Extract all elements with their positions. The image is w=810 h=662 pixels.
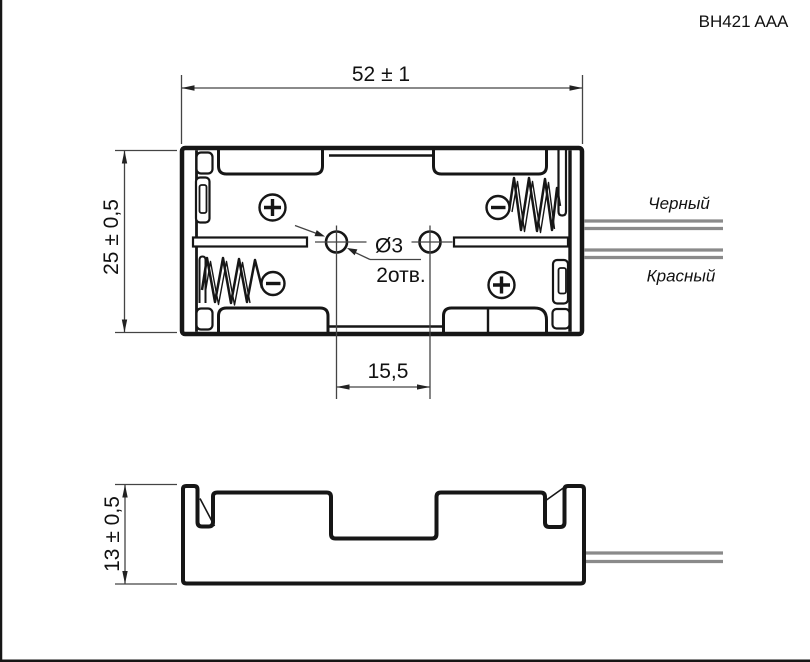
dim-width-label: 52 ± 1 xyxy=(352,63,410,86)
side-notch-chamfer-right xyxy=(547,488,565,501)
side-view xyxy=(183,486,723,584)
drawing-page: 52 ± 1 25 ± 0,5 15,5 Ø3 2отв. Черный Кра… xyxy=(0,0,810,662)
dimension-width-52: 52 ± 1 xyxy=(182,63,583,144)
hole-count-note: 2отв. xyxy=(376,264,426,287)
drawing-title: BH421 AAA xyxy=(699,12,789,31)
black-wire-label: Черный xyxy=(648,194,710,213)
red-wire-label: Красный xyxy=(647,267,716,286)
center-rail-right xyxy=(454,238,568,247)
dim-hole-spacing-label: 15,5 xyxy=(368,360,409,383)
plus-contact-icon-top xyxy=(260,195,286,221)
dim-height-label: 13 ± 0,5 xyxy=(101,496,124,572)
side-profile-outline xyxy=(183,486,584,584)
wires-top-view: Черный Красный xyxy=(584,194,723,286)
minus-contact-icon-top xyxy=(487,196,510,219)
dimension-height-13: 13 ± 0,5 xyxy=(101,485,177,585)
corner-tab-bottom-left xyxy=(197,309,213,330)
drawing-canvas: 52 ± 1 25 ± 0,5 15,5 Ø3 2отв. Черный Кра… xyxy=(0,0,810,662)
center-rail-left xyxy=(193,238,307,247)
dim-depth-label: 25 ± 0,5 xyxy=(100,199,123,275)
minus-contact-icon-bottom xyxy=(262,272,285,295)
corner-tab-top-left xyxy=(197,153,213,174)
hole-diameter-note: Ø3 xyxy=(375,235,403,258)
dimension-hole-spacing: 15,5 xyxy=(337,360,431,390)
corner-tab-bottom-right xyxy=(553,309,570,329)
dimension-depth-25: 25 ± 0,5 xyxy=(100,151,177,333)
plus-contact-icon-bottom xyxy=(489,272,515,298)
